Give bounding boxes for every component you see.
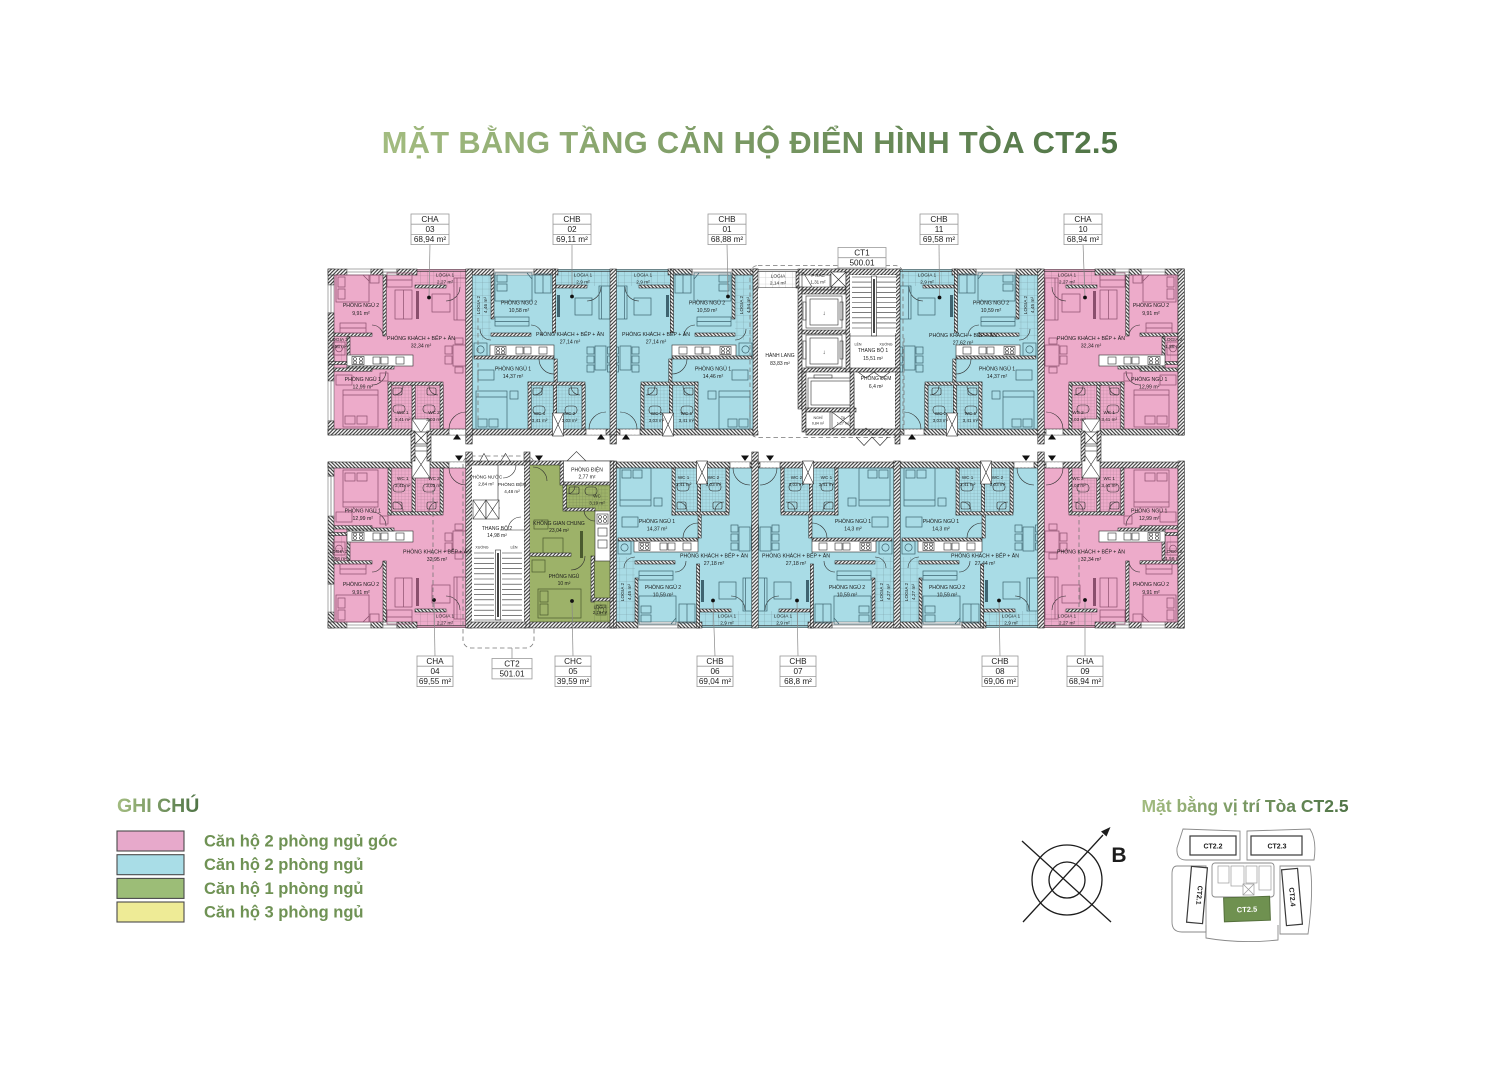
svg-text:B: B [1111, 844, 1126, 867]
svg-text:500.01: 500.01 [849, 259, 874, 268]
svg-text:4,27 m²: 4,27 m² [886, 583, 892, 600]
svg-text:27,62 m²: 27,62 m² [953, 341, 974, 347]
svg-text:CHA: CHA [421, 215, 439, 224]
svg-text:PHÒNG NGỦ 2: PHÒNG NGỦ 2 [1133, 302, 1169, 309]
svg-text:9,91 m²: 9,91 m² [352, 590, 370, 596]
svg-text:WC 1: WC 1 [678, 475, 690, 480]
svg-text:3,03 m²: 3,03 m² [1070, 417, 1086, 422]
svg-text:32,34 m²: 32,34 m² [1081, 557, 1102, 563]
svg-text:KHÔNG GIAN CHUNG: KHÔNG GIAN CHUNG [533, 520, 585, 527]
svg-text:WC 2: WC 2 [992, 475, 1004, 480]
svg-text:10 m²: 10 m² [558, 581, 571, 587]
svg-text:4,48 m²: 4,48 m² [504, 489, 520, 494]
svg-text:LOGIA 1: LOGIA 1 [774, 614, 793, 620]
svg-text:MẶT BẰNG TẦNG CĂN HỘ ĐIỂN HÌNH: MẶT BẰNG TẦNG CĂN HỘ ĐIỂN HÌNH TÒA CT2.5 [382, 124, 1119, 160]
svg-text:WC 2: WC 2 [651, 411, 663, 416]
svg-text:LÊN: LÊN [855, 342, 862, 347]
svg-text:68,94 m²: 68,94 m² [414, 235, 447, 244]
svg-text:32,34 m²: 32,34 m² [1081, 344, 1102, 350]
svg-text:2,27 m²: 2,27 m² [1059, 280, 1076, 286]
svg-text:PHÒNG NGỦ 1: PHÒNG NGỦ 1 [1131, 508, 1167, 515]
svg-text:10,59 m²: 10,59 m² [981, 308, 1002, 314]
svg-text:10,58 m²: 10,58 m² [509, 308, 530, 314]
svg-text:WC 1: WC 1 [397, 476, 409, 481]
svg-text:14,46 m²: 14,46 m² [703, 374, 724, 380]
svg-text:10,59 m²: 10,59 m² [653, 593, 674, 599]
svg-text:14,37 m²: 14,37 m² [987, 374, 1008, 380]
svg-text:PHÒNG KHÁCH + BẾP + ĂN: PHÒNG KHÁCH + BẾP + ĂN [536, 331, 604, 338]
svg-text:1,56 m²: 1,56 m² [331, 344, 348, 350]
svg-text:LOGIA 1: LOGIA 1 [574, 273, 593, 279]
svg-text:LOGIA 2: LOGIA 2 [329, 337, 348, 343]
svg-text:WC 2: WC 2 [428, 476, 440, 481]
svg-text:32,34 m²: 32,34 m² [411, 344, 432, 350]
svg-text:PHÒNG NGỦ 2: PHÒNG NGỦ 2 [343, 581, 379, 588]
svg-text:PHÒNG KHÁCH + BẾP + ĂN: PHÒNG KHÁCH + BẾP + ĂN [929, 332, 997, 339]
svg-text:PHÒNG KHÁCH + BẾP + ĂN: PHÒNG KHÁCH + BẾP + ĂN [1057, 549, 1125, 556]
svg-text:14,98 m²: 14,98 m² [487, 533, 507, 539]
svg-text:WC 2: WC 2 [1072, 476, 1084, 481]
svg-text:12,99 m²: 12,99 m² [1139, 385, 1160, 391]
svg-text:15,51 m²: 15,51 m² [863, 356, 883, 362]
svg-text:9,91 m²: 9,91 m² [1142, 311, 1160, 317]
svg-text:12,99 m²: 12,99 m² [353, 385, 374, 391]
svg-text:WC 1: WC 1 [534, 411, 546, 416]
svg-text:68,8 m²: 68,8 m² [784, 677, 812, 686]
svg-text:WC 2: WC 2 [791, 475, 803, 480]
svg-text:2,9 m²: 2,9 m² [776, 621, 790, 627]
svg-text:10,59 m²: 10,59 m² [837, 593, 858, 599]
svg-text:69,04 m²: 69,04 m² [699, 677, 732, 686]
svg-text:LOGIA 1: LOGIA 1 [1058, 273, 1077, 279]
svg-text:PHÒNG ĐỆM: PHÒNG ĐỆM [498, 480, 527, 487]
svg-text:WC 2: WC 2 [935, 411, 947, 416]
svg-text:Căn hộ 2 phòng ngủ: Căn hộ 2 phòng ngủ [204, 856, 363, 874]
svg-text:LOGIA 2: LOGIA 2 [1164, 337, 1183, 343]
svg-text:WC 2: WC 2 [1072, 410, 1084, 415]
svg-text:LOGIA 2: LOGIA 2 [739, 295, 745, 314]
svg-text:3,03 m²: 3,03 m² [933, 418, 949, 423]
svg-text:HÀNH LANG: HÀNH LANG [765, 352, 794, 359]
svg-text:3,03 m²: 3,03 m² [789, 482, 805, 487]
svg-text:LOGIA: LOGIA [771, 274, 786, 280]
svg-text:PHÒNG NGỦ 2: PHÒNG NGỦ 2 [929, 584, 965, 591]
svg-text:LOGIA 1: LOGIA 1 [436, 614, 455, 620]
svg-text:12,99 m²: 12,99 m² [1139, 516, 1160, 522]
svg-text:2,9 m²: 2,9 m² [636, 280, 650, 286]
svg-text:PHÒNG NGỦ 1: PHÒNG NGỦ 1 [835, 518, 871, 525]
svg-text:2,27 m²: 2,27 m² [437, 621, 454, 627]
svg-text:NGHỈ: NGHỈ [814, 415, 823, 420]
svg-text:LOGIA: LOGIA [594, 605, 607, 610]
svg-text:PHÒNG NGỦ: PHÒNG NGỦ [549, 573, 580, 580]
svg-text:PHÒNG NGỦ 1: PHÒNG NGỦ 1 [639, 518, 675, 525]
svg-text:LOGIA 2: LOGIA 2 [476, 295, 482, 314]
svg-text:PHÒNG NƯỚC: PHÒNG NƯỚC [470, 474, 503, 480]
svg-text:14,37 m²: 14,37 m² [647, 527, 668, 533]
svg-text:2,9 m²: 2,9 m² [720, 621, 734, 627]
svg-text:CHA: CHA [1076, 657, 1094, 666]
svg-text:1,27 m²: 1,27 m² [837, 422, 850, 426]
svg-text:PHÒNG NGỦ 2: PHÒNG NGỦ 2 [343, 302, 379, 309]
svg-text:02: 02 [567, 225, 577, 234]
svg-text:03: 03 [425, 225, 435, 234]
svg-text:CHB: CHB [991, 657, 1009, 666]
svg-text:2,9 m²: 2,9 m² [1004, 621, 1018, 627]
svg-text:3,41 m²: 3,41 m² [960, 482, 976, 487]
svg-text:27,18 m²: 27,18 m² [704, 561, 725, 567]
svg-text:↓: ↓ [823, 311, 826, 317]
svg-text:69,11 m²: 69,11 m² [556, 235, 588, 244]
svg-text:WC 1: WC 1 [821, 475, 833, 480]
svg-text:Căn hộ 3 phòng ngủ: Căn hộ 3 phòng ngủ [204, 904, 363, 922]
svg-text:PHÒNG KHÁCH + BẾP + ĂN: PHÒNG KHÁCH + BẾP + ĂN [680, 553, 748, 560]
svg-text:10,59 m²: 10,59 m² [697, 308, 718, 314]
svg-text:4,45 m²: 4,45 m² [627, 583, 633, 600]
svg-text:Căn hộ 1 phòng ngủ: Căn hộ 1 phòng ngủ [204, 880, 363, 898]
svg-text:14,3 m²: 14,3 m² [932, 527, 950, 533]
svg-text:27,44 m²: 27,44 m² [975, 561, 996, 567]
svg-text:4,45 m²: 4,45 m² [1030, 296, 1036, 313]
svg-text:83,83 m²: 83,83 m² [770, 361, 790, 367]
svg-text:WC 1: WC 1 [1103, 476, 1115, 481]
svg-text:27,14 m²: 27,14 m² [646, 340, 667, 346]
svg-text:CT1: CT1 [854, 248, 870, 257]
svg-text:3,41 m²: 3,41 m² [1101, 483, 1117, 488]
svg-text:3,41 m²: 3,41 m² [532, 418, 548, 423]
svg-text:69,55 m²: 69,55 m² [419, 677, 452, 686]
svg-text:CT2.5: CT2.5 [1237, 905, 1258, 915]
svg-text:PHÒNG KHÁCH + BẾP + ĂN: PHÒNG KHÁCH + BẾP + ĂN [951, 553, 1019, 560]
svg-text:9,91 m²: 9,91 m² [352, 311, 370, 317]
svg-text:3,03 m²: 3,03 m² [990, 482, 1006, 487]
svg-text:2,9 m²: 2,9 m² [920, 280, 934, 286]
svg-text:XUỐNG: XUỐNG [879, 342, 892, 347]
svg-text:CHB: CHB [930, 215, 948, 224]
svg-text:PHÒNG NGỦ 2: PHÒNG NGỦ 2 [689, 300, 725, 307]
svg-text:THANG BỘ 1: THANG BỘ 1 [858, 347, 889, 354]
svg-text:23,04 m²: 23,04 m² [549, 528, 569, 534]
svg-text:LOGIA 1: LOGIA 1 [1058, 614, 1077, 620]
svg-text:WC 1: WC 1 [681, 411, 693, 416]
svg-text:LÊN: LÊN [511, 545, 518, 550]
svg-text:PHÒNG NGỦ 1: PHÒNG NGỦ 1 [695, 366, 731, 373]
svg-text:CT2.2: CT2.2 [1203, 844, 1222, 851]
svg-text:CT2.3: CT2.3 [1267, 844, 1286, 851]
svg-text:LOGIA 1: LOGIA 1 [1002, 614, 1021, 620]
svg-text:9,91 m²: 9,91 m² [1142, 590, 1160, 596]
svg-text:06: 06 [710, 667, 720, 676]
svg-text:LOGIA 2: LOGIA 2 [620, 582, 626, 601]
svg-text:2,27 m²: 2,27 m² [437, 280, 454, 286]
svg-text:4,54 m²: 4,54 m² [746, 296, 752, 313]
svg-text:3,19 m²: 3,19 m² [589, 501, 605, 506]
svg-text:WC 1: WC 1 [397, 410, 409, 415]
svg-text:14,37 m²: 14,37 m² [503, 374, 524, 380]
svg-text:PHÒNG KHÁCH + BẾP + ĂN: PHÒNG KHÁCH + BẾP + ĂN [387, 335, 455, 342]
svg-text:PHÒNG NGỦ 1: PHÒNG NGỦ 1 [345, 508, 381, 515]
svg-text:04: 04 [430, 667, 440, 676]
svg-text:01: 01 [722, 225, 732, 234]
svg-text:WC 2: WC 2 [708, 475, 720, 480]
svg-text:10,59 m²: 10,59 m² [937, 593, 958, 599]
svg-text:1,31 m²: 1,31 m² [811, 280, 826, 285]
svg-text:PHÒNG KHÁCH + BẾP + ĂN: PHÒNG KHÁCH + BẾP + ĂN [622, 331, 690, 338]
svg-text:PHÒNG NGỦ 2: PHÒNG NGỦ 2 [1133, 581, 1169, 588]
svg-text:68,88 m²: 68,88 m² [711, 235, 744, 244]
svg-text:1,56 m²: 1,56 m² [1165, 344, 1182, 350]
svg-text:PHÒNG NGỦ 2: PHÒNG NGỦ 2 [973, 300, 1009, 307]
svg-text:07: 07 [793, 667, 803, 676]
svg-text:GHI CHÚ: GHI CHÚ [117, 793, 199, 817]
svg-text:XUỐNG: XUỐNG [475, 545, 488, 550]
svg-text:WC 1: WC 1 [962, 475, 974, 480]
svg-text:2,77 m²: 2,77 m² [579, 475, 596, 481]
svg-text:3,03 m²: 3,03 m² [426, 417, 442, 422]
svg-text:3,03 m²: 3,03 m² [1070, 483, 1086, 488]
svg-text:12,99 m²: 12,99 m² [353, 516, 374, 522]
svg-text:68,94 m²: 68,94 m² [1069, 677, 1102, 686]
svg-text:PHÒNG NGỦ 2: PHÒNG NGỦ 2 [645, 584, 681, 591]
svg-text:Mặt bằng vị trí Tòa CT2.5: Mặt bằng vị trí Tòa CT2.5 [1141, 795, 1348, 816]
svg-text:3,03 m²: 3,03 m² [649, 418, 665, 423]
svg-text:WC 1: WC 1 [965, 411, 977, 416]
svg-text:Căn hộ 2 phòng ngủ góc: Căn hộ 2 phòng ngủ góc [204, 833, 397, 851]
svg-text:3,03 m²: 3,03 m² [706, 482, 722, 487]
svg-text:CHB: CHB [563, 215, 581, 224]
svg-text:39,59 m²: 39,59 m² [557, 677, 590, 686]
svg-text:CHB: CHB [789, 657, 807, 666]
svg-text:3,41 m²: 3,41 m² [819, 482, 835, 487]
svg-text:27,14 m²: 27,14 m² [560, 340, 581, 346]
svg-text:2,9 m²: 2,9 m² [576, 280, 590, 286]
svg-text:2,14 m²: 2,14 m² [770, 281, 787, 287]
svg-text:PHÒNG NGỦ 1: PHÒNG NGỦ 1 [979, 366, 1015, 373]
svg-text:WC 2: WC 2 [564, 411, 576, 416]
svg-text:3,03 m²: 3,03 m² [562, 418, 578, 423]
svg-text:1,56 m²: 1,56 m² [1165, 556, 1182, 562]
svg-text:3,41 m²: 3,41 m² [1101, 417, 1117, 422]
svg-text:14,3 m²: 14,3 m² [844, 527, 862, 533]
svg-text:LOGIA 2: LOGIA 2 [1023, 295, 1029, 314]
svg-text:LOGIA 1: LOGIA 1 [634, 273, 653, 279]
svg-text:LOGIA 2: LOGIA 2 [1164, 549, 1183, 555]
svg-text:LOGIA 2: LOGIA 2 [904, 582, 910, 601]
svg-text:05: 05 [568, 667, 578, 676]
svg-text:PHÒNG NGỦ 1: PHÒNG NGỦ 1 [923, 518, 959, 525]
svg-text:2,27 m²: 2,27 m² [1059, 621, 1076, 627]
svg-text:LOGIA 1: LOGIA 1 [436, 273, 455, 279]
svg-text:CHB: CHB [706, 657, 724, 666]
svg-text:6,4 m²: 6,4 m² [869, 384, 884, 390]
svg-text:↓: ↓ [823, 350, 826, 356]
svg-text:PHÒNG ĐIỆN: PHÒNG ĐIỆN [571, 466, 603, 474]
svg-text:CHB: CHB [718, 215, 736, 224]
svg-text:3,41 m²: 3,41 m² [679, 418, 695, 423]
svg-text:CT2: CT2 [504, 659, 520, 668]
svg-text:PHÒNG NGỦ 1: PHÒNG NGỦ 1 [1131, 376, 1167, 383]
svg-text:27,18 m²: 27,18 m² [786, 561, 807, 567]
svg-text:501.01: 501.01 [499, 670, 524, 679]
svg-text:3,41 m²: 3,41 m² [395, 483, 411, 488]
svg-text:PHÒNG ĐỆM: PHÒNG ĐỆM [861, 374, 892, 382]
svg-text:LOGIA 1: LOGIA 1 [718, 614, 737, 620]
svg-text:3,41 m²: 3,41 m² [963, 418, 979, 423]
svg-text:WC: WC [593, 494, 601, 499]
svg-text:4,27 m²: 4,27 m² [911, 583, 917, 600]
svg-text:3,41 m²: 3,41 m² [676, 482, 692, 487]
svg-text:P RÁC: P RÁC [811, 273, 824, 278]
svg-text:TA: TA [841, 416, 846, 420]
svg-text:08: 08 [995, 667, 1005, 676]
svg-text:LOGIA 1: LOGIA 1 [918, 273, 937, 279]
svg-text:PHÒNG NGỦ 1: PHÒNG NGỦ 1 [345, 376, 381, 383]
svg-text:4,46 m²: 4,46 m² [483, 296, 489, 313]
svg-text:2,84 m²: 2,84 m² [478, 482, 494, 487]
svg-text:WC 2: WC 2 [428, 410, 440, 415]
svg-text:68,94 m²: 68,94 m² [1067, 235, 1100, 244]
svg-text:PHÒNG NGỦ 2: PHÒNG NGỦ 2 [829, 584, 865, 591]
svg-text:69,58 m²: 69,58 m² [923, 235, 956, 244]
svg-text:1,56 m²: 1,56 m² [331, 556, 348, 562]
svg-text:PHÒNG KHÁCH + BẾP + ĂN: PHÒNG KHÁCH + BẾP + ĂN [1057, 335, 1125, 342]
svg-text:32,95 m²: 32,95 m² [427, 557, 448, 563]
svg-text:3,03 m²: 3,03 m² [426, 483, 442, 488]
svg-text:WC 1: WC 1 [1103, 410, 1115, 415]
svg-text:THANG BỘ 2: THANG BỘ 2 [482, 525, 513, 532]
svg-text:PHÒNG KHÁCH + BẾP + ĂN: PHÒNG KHÁCH + BẾP + ĂN [762, 553, 830, 560]
svg-text:CHA: CHA [1074, 215, 1092, 224]
svg-text:0,84 m²: 0,84 m² [812, 422, 825, 426]
svg-text:10: 10 [1078, 225, 1088, 234]
svg-text:11: 11 [935, 225, 944, 234]
svg-text:CHC: CHC [564, 657, 582, 666]
svg-text:2,13 m²: 2,13 m² [593, 610, 608, 615]
svg-text:PHÒNG KHÁCH + BẾP + ĂN: PHÒNG KHÁCH + BẾP + ĂN [403, 549, 471, 556]
svg-text:LOGIA 2: LOGIA 2 [329, 549, 348, 555]
svg-text:CHA: CHA [426, 657, 444, 666]
svg-text:3,41 m²: 3,41 m² [395, 417, 411, 422]
svg-text:PHÒNG NGỦ 2: PHÒNG NGỦ 2 [501, 300, 537, 307]
svg-text:69,06 m²: 69,06 m² [984, 677, 1017, 686]
svg-text:09: 09 [1080, 667, 1090, 676]
svg-text:PHÒNG NGỦ 1: PHÒNG NGỦ 1 [495, 366, 531, 373]
svg-text:LOGIA 2: LOGIA 2 [879, 582, 885, 601]
